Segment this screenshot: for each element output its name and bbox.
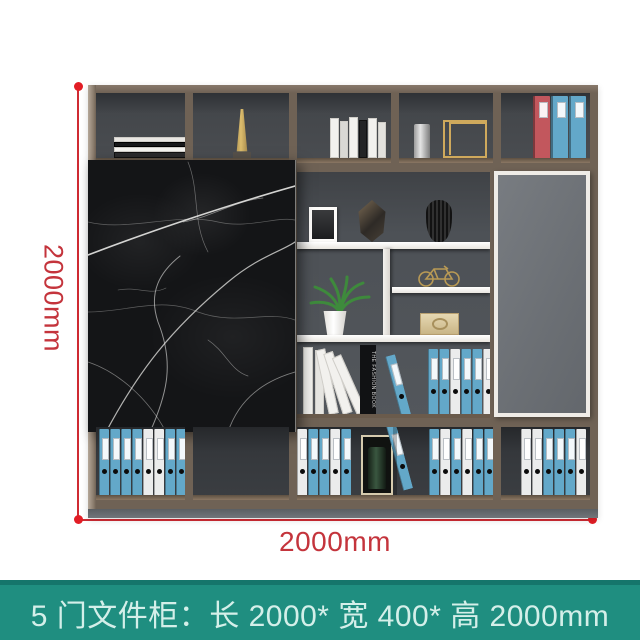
height-label: 2000mm xyxy=(38,244,69,352)
top-shelf-compartment-2 xyxy=(193,93,289,163)
file-binder xyxy=(143,429,153,495)
plant-pot xyxy=(320,311,350,335)
file-binder xyxy=(439,349,449,415)
bicycle-figurine xyxy=(418,263,460,287)
green-bottle xyxy=(368,447,386,489)
top-shelf-compartment-5 xyxy=(501,93,590,163)
file-binder xyxy=(308,429,318,495)
caption-text: 5 门文件柜：长 2000* 宽 400* 高 2000mm xyxy=(31,591,610,635)
metal-cup xyxy=(414,124,430,158)
file-binder xyxy=(429,429,439,495)
caption-bar: 5 门文件柜：长 2000* 宽 400* 高 2000mm xyxy=(0,580,640,640)
bottom-compartment-4 xyxy=(501,427,590,500)
white-vertical-divider xyxy=(383,249,390,335)
bottom-compartment-2 xyxy=(193,427,289,500)
file-binder xyxy=(533,96,550,158)
file-binder xyxy=(462,429,472,495)
shelf-binder-group xyxy=(428,349,490,415)
file-binder xyxy=(451,429,461,495)
gold-wire-stand-inner xyxy=(449,122,487,155)
white-mini-shelf xyxy=(392,287,490,293)
file-binder xyxy=(551,96,568,158)
file-binder xyxy=(461,349,471,415)
white-shelf-lower xyxy=(297,335,490,342)
dimension-dot-top xyxy=(74,82,83,91)
top-binder-group xyxy=(533,96,586,158)
bottle-display-stand xyxy=(361,435,393,495)
shelf-floor xyxy=(297,414,490,418)
width-dimension-line xyxy=(77,519,593,521)
leaning-binder xyxy=(385,354,412,418)
file-binder xyxy=(330,429,340,495)
file-binder xyxy=(121,429,131,495)
file-binder xyxy=(132,429,142,495)
trophy-base xyxy=(233,152,251,158)
top-shelf-compartment-1 xyxy=(96,93,185,163)
bottom-binder-group-1 xyxy=(99,429,185,495)
bottom-binder-group-2 xyxy=(297,429,351,495)
file-binder xyxy=(319,429,329,495)
file-binder xyxy=(450,349,460,415)
width-label: 2000mm xyxy=(279,526,391,558)
faceted-ornament xyxy=(357,200,387,242)
file-binder xyxy=(176,429,185,495)
potted-plant xyxy=(307,275,373,335)
bottom-compartment-1 xyxy=(96,427,185,500)
file-binder xyxy=(532,429,542,495)
cabinet-plinth xyxy=(88,509,598,518)
bottom-compartment-3 xyxy=(297,427,493,500)
gray-door xyxy=(494,171,590,417)
file-binder xyxy=(565,429,575,495)
marble-door xyxy=(88,160,296,432)
black-ribbed-vase xyxy=(426,200,452,242)
file-binder xyxy=(473,429,483,495)
photo-frame xyxy=(309,207,337,242)
file-binder xyxy=(154,429,164,495)
file-binder xyxy=(440,429,450,495)
top-shelf-compartment-3 xyxy=(297,93,391,163)
file-binder xyxy=(569,96,586,158)
file-binder xyxy=(99,429,109,495)
file-binder xyxy=(428,349,438,415)
height-dimension-line xyxy=(77,86,79,520)
file-binder xyxy=(484,429,493,495)
standing-books xyxy=(330,117,386,158)
file-binder xyxy=(521,429,531,495)
bottom-binder-group-4 xyxy=(521,429,586,495)
file-binder xyxy=(483,349,490,415)
cabinet-top-frame xyxy=(88,85,598,93)
middle-shelving: THE FASHION BOOK xyxy=(297,172,490,418)
trophy-figurine xyxy=(231,109,253,155)
top-shelf-compartment-4 xyxy=(399,93,493,163)
file-binder xyxy=(165,429,175,495)
file-binder xyxy=(472,349,482,415)
file-binder xyxy=(576,429,586,495)
bottom-binder-group-3 xyxy=(429,429,493,495)
file-binder xyxy=(543,429,553,495)
dimension-dot-bottom-left xyxy=(74,515,83,524)
file-binder xyxy=(297,429,307,495)
white-shelf-upper xyxy=(297,242,490,249)
filing-cabinet: THE FASHION BOOK xyxy=(88,85,598,518)
file-binder xyxy=(110,429,120,495)
file-binder xyxy=(554,429,564,495)
fashion-book: THE FASHION BOOK xyxy=(360,345,376,415)
stacked-books xyxy=(114,137,185,158)
compartment-shade xyxy=(393,427,397,500)
file-binder xyxy=(341,429,351,495)
gold-box xyxy=(420,313,459,335)
